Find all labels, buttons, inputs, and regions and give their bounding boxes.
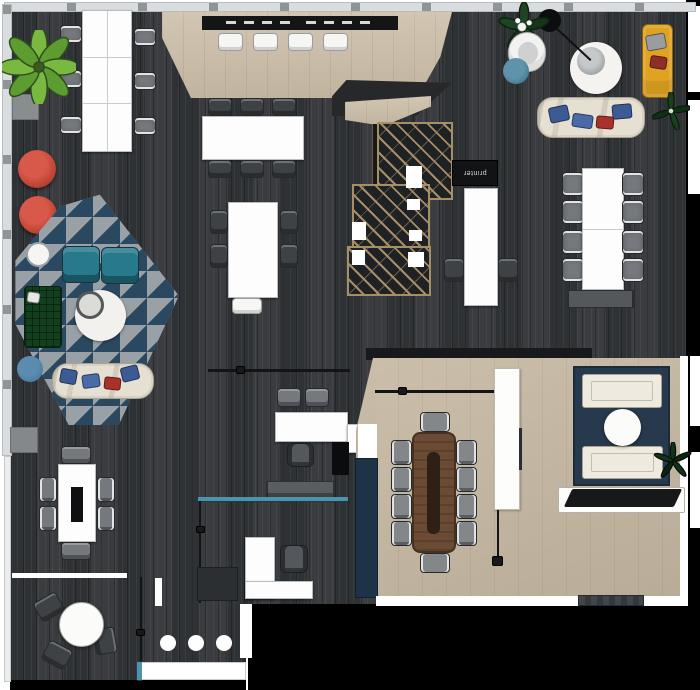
table-runner (427, 452, 440, 534)
whiteboard (494, 368, 520, 510)
storage-box (332, 442, 349, 475)
chair (391, 440, 412, 465)
wall-line (140, 577, 142, 661)
chair (562, 258, 584, 282)
place-settings (226, 21, 290, 24)
floor-marker (216, 635, 232, 651)
stair-landing (352, 222, 366, 240)
stool (288, 33, 313, 51)
cushion (571, 113, 594, 130)
glass-coffee-table (76, 291, 104, 319)
teal-armchair (62, 246, 100, 283)
office-floorplan: printer (0, 0, 700, 690)
chair (210, 210, 228, 234)
glass-door (137, 662, 142, 680)
chair (622, 200, 644, 224)
chair (134, 117, 156, 135)
wall-line (497, 510, 499, 560)
chair (391, 467, 412, 492)
credenza (358, 424, 377, 458)
chair (622, 230, 644, 254)
service-counter (197, 567, 238, 601)
left-wall-lower (4, 456, 11, 682)
chair (277, 388, 301, 407)
chair (456, 521, 477, 546)
chair (208, 160, 232, 178)
partition-line (208, 369, 350, 372)
meeting-table (228, 202, 278, 298)
chair (97, 506, 115, 531)
round-table (59, 602, 104, 647)
chair (280, 244, 298, 268)
tv (564, 489, 682, 507)
chair (61, 446, 91, 464)
chair (420, 553, 450, 573)
chair (562, 172, 584, 196)
chair (562, 230, 584, 254)
chair (134, 28, 156, 46)
cushion (649, 55, 668, 70)
white-sofa (582, 446, 663, 479)
door-mat (578, 595, 644, 606)
chair (240, 98, 264, 116)
chair (391, 521, 412, 546)
high-table (464, 188, 498, 306)
wall-segment (690, 356, 700, 426)
l-desk-return (245, 581, 313, 599)
chair (622, 172, 644, 196)
stool (323, 33, 348, 51)
chair (391, 494, 412, 519)
chair (420, 412, 450, 432)
stair-landing (409, 230, 422, 241)
void-bottom-left (10, 680, 246, 690)
bench-desk (82, 10, 132, 152)
storage-bench (567, 290, 634, 308)
small-plant (652, 92, 690, 130)
stair-landing (352, 250, 365, 265)
chair (210, 244, 228, 268)
coffee-table (604, 409, 641, 446)
chair (97, 477, 115, 502)
desk (275, 412, 348, 442)
chair (39, 506, 57, 531)
blue-pouf (17, 356, 43, 382)
cushion (645, 32, 667, 51)
chair (60, 116, 82, 134)
chair (272, 98, 296, 116)
cushion (26, 291, 40, 304)
stair-landing (406, 166, 422, 188)
chair (444, 258, 464, 282)
wall-segment (680, 356, 688, 606)
chair (208, 98, 232, 116)
chair (622, 258, 644, 282)
chair (61, 542, 91, 560)
wall-segment (155, 578, 162, 606)
partition-post (398, 387, 407, 395)
wall-segment (240, 604, 252, 658)
chair (39, 477, 57, 502)
printer-cabinet: printer (452, 160, 498, 186)
team-table (582, 168, 624, 290)
teal-ottoman (503, 58, 529, 84)
sofa-seat (591, 453, 654, 472)
red-pouf (18, 150, 56, 188)
sofa-seat (591, 381, 653, 401)
glass-wall (375, 390, 498, 393)
stool (253, 33, 278, 51)
wall-segment (12, 573, 127, 578)
chair (456, 440, 477, 465)
place-settings (306, 21, 370, 24)
wall-segment (140, 662, 246, 680)
chair (272, 160, 296, 178)
partition-post (136, 629, 145, 636)
side-table (26, 242, 51, 267)
floor-mat (10, 427, 38, 453)
cushion (611, 103, 632, 120)
partition-post (492, 556, 503, 566)
stool (232, 298, 262, 314)
cushion (81, 373, 101, 389)
glass-partition (198, 497, 348, 501)
plant (2, 30, 76, 104)
teal-armchair (101, 247, 139, 284)
cushion (103, 376, 121, 391)
chair (240, 160, 264, 178)
floor-marker (188, 635, 204, 651)
whiteboard-rail (519, 428, 522, 470)
chair (134, 72, 156, 90)
office-chair (280, 545, 308, 573)
plant (654, 442, 692, 480)
stool (218, 33, 243, 51)
void-bottom (248, 604, 700, 690)
cushion (59, 368, 78, 386)
office-chair (287, 443, 314, 467)
printer-label: printer (453, 161, 497, 185)
partition-post (196, 526, 205, 533)
table-planter-slot (71, 487, 83, 522)
meeting-table (202, 116, 304, 160)
chair (562, 200, 584, 224)
chair (456, 494, 477, 519)
chair (280, 210, 298, 234)
stair-landing (407, 199, 420, 210)
partition-post (236, 366, 245, 374)
chair (456, 467, 477, 492)
chair (498, 258, 518, 282)
white-sofa (582, 374, 662, 408)
navy-wall-bench (355, 458, 378, 598)
floor-marker (160, 635, 176, 651)
wall-segment (688, 6, 700, 92)
stair-landing (408, 252, 424, 267)
chair (305, 388, 329, 407)
